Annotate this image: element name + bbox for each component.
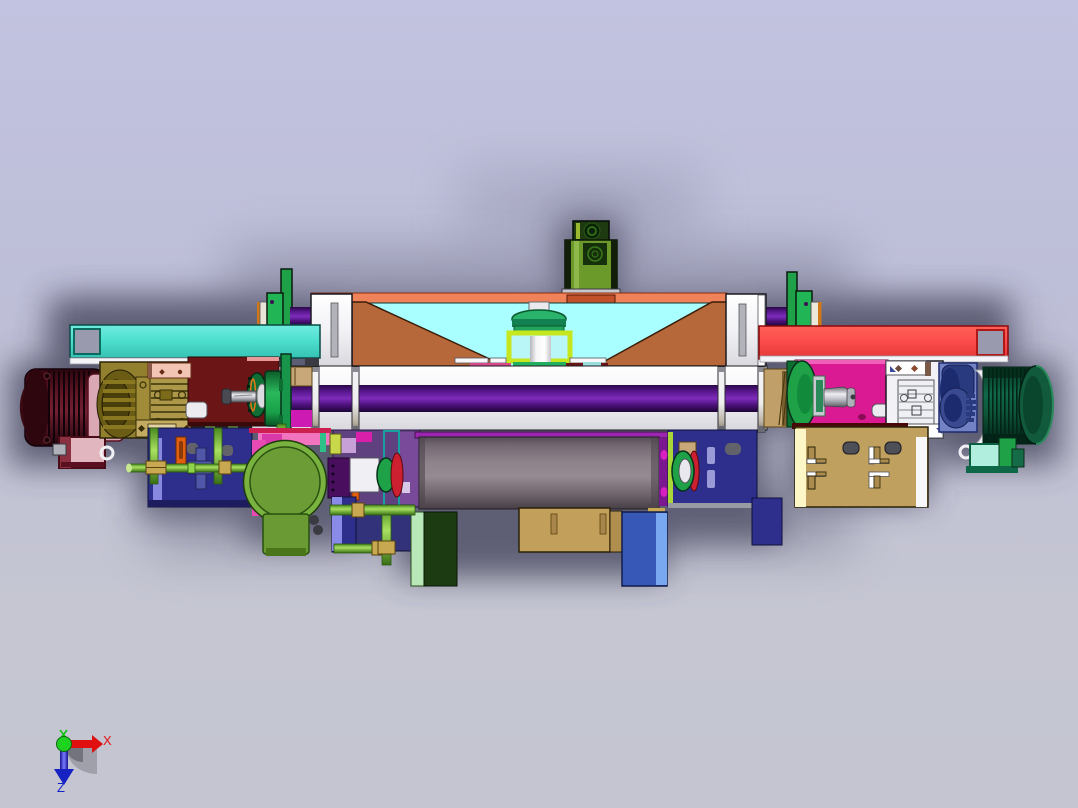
svg-text:X: X xyxy=(103,733,112,748)
svg-text:Z: Z xyxy=(57,780,65,795)
